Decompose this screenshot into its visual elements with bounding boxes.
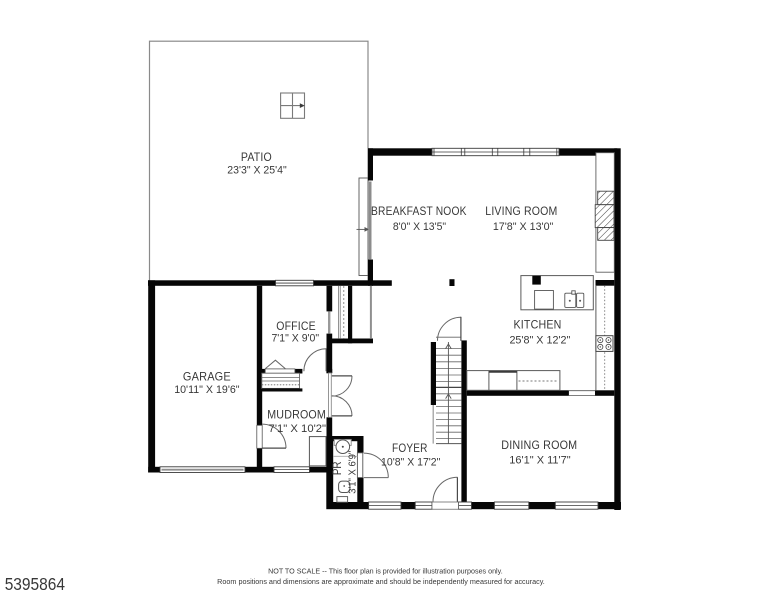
svg-text:GARAGE: GARAGE <box>183 370 231 384</box>
svg-text:16'1" X 11'7": 16'1" X 11'7" <box>509 454 570 466</box>
svg-text:LIVING ROOM: LIVING ROOM <box>485 204 557 218</box>
svg-text:8'0" X 13'5": 8'0" X 13'5" <box>393 221 446 233</box>
svg-text:5395864: 5395864 <box>5 574 65 594</box>
svg-text:BREAKFAST NOOK: BREAKFAST NOOK <box>371 204 467 218</box>
svg-text:7'1" X 9'0": 7'1" X 9'0" <box>271 332 319 344</box>
svg-text:NOT TO SCALE -- This floor pla: NOT TO SCALE -- This floor plan is provi… <box>268 569 503 576</box>
svg-text:7'1" X 10'2": 7'1" X 10'2" <box>269 423 327 435</box>
svg-text:PATIO: PATIO <box>241 150 272 164</box>
svg-text:3'1" X 6'9": 3'1" X 6'9" <box>348 450 359 493</box>
svg-text:KITCHEN: KITCHEN <box>514 317 562 331</box>
svg-text:FOYER: FOYER <box>392 441 428 455</box>
svg-text:10'11" X 19'6": 10'11" X 19'6" <box>174 384 239 396</box>
svg-text:DINING ROOM: DINING ROOM <box>501 438 577 452</box>
svg-text:PR: PR <box>330 461 344 475</box>
svg-text:17'8" X 13'0": 17'8" X 13'0" <box>493 221 554 233</box>
svg-text:23'3" X 25'4": 23'3" X 25'4" <box>227 165 286 177</box>
svg-text:25'8" X 12'2": 25'8" X 12'2" <box>509 334 570 346</box>
svg-text:MUDROOM: MUDROOM <box>267 408 326 422</box>
svg-text:10'8" X 17'2": 10'8" X 17'2" <box>381 457 440 469</box>
svg-text:OFFICE: OFFICE <box>276 319 316 333</box>
svg-text:Room positions and dimensions: Room positions and dimensions are approx… <box>217 579 545 586</box>
